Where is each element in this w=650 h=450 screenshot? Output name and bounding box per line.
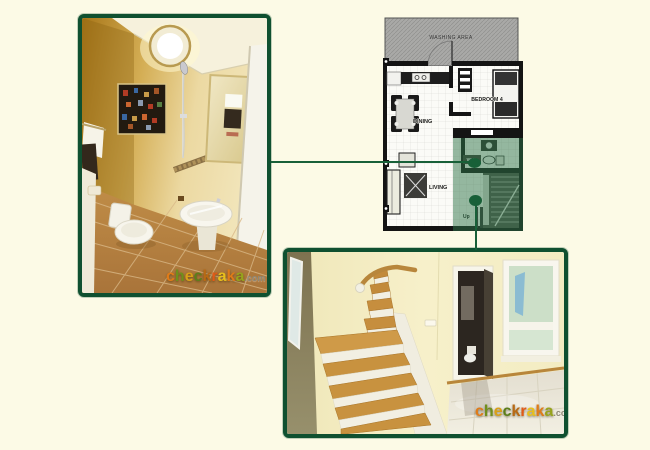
watermark-word: checkraka — [475, 403, 553, 420]
bed — [493, 70, 519, 118]
highlight-dot-wc — [468, 158, 481, 168]
open-door — [484, 269, 493, 379]
mosaic-art — [118, 84, 166, 134]
bathroom-photo — [82, 18, 267, 293]
staircase-photo-frame: checkraka.com — [283, 248, 568, 438]
connector-line-horizontal — [271, 161, 473, 163]
watermark-suffix: .com — [553, 408, 568, 418]
sliding-door — [471, 130, 493, 135]
washing-area-label: WASHING AREA — [429, 35, 472, 41]
living-label: LIVING — [429, 185, 447, 191]
bathroom-watermark: checkraka.com — [166, 269, 265, 285]
collage-canvas: checkraka.com WASHING AREA — [0, 0, 650, 450]
paper-holder — [88, 186, 101, 195]
washing-area: WASHING AREA — [385, 18, 518, 66]
staircase-watermark: checkraka.com — [475, 404, 568, 420]
window-sill — [501, 356, 561, 362]
kitchen — [387, 72, 449, 85]
interior-window — [501, 260, 561, 362]
side-window — [289, 258, 302, 348]
dining-label: DINING — [413, 119, 432, 125]
ceiling-light — [140, 24, 200, 72]
watermark-suffix: .com — [244, 273, 265, 283]
doorway — [453, 266, 493, 380]
toilet-tank — [467, 346, 476, 354]
bathroom-photo-frame: checkraka.com — [78, 14, 271, 297]
highlight-dot-stairs — [469, 195, 482, 206]
toilet-bowl — [464, 354, 476, 363]
wardrobe-slats — [460, 71, 470, 89]
floor-plan: WASHING AREA DINING — [383, 17, 523, 231]
connector-line-vertical — [475, 200, 477, 250]
bedroom-label: BEDROOM 4 — [471, 97, 503, 103]
highlight-overlay — [453, 138, 523, 231]
floor-drain — [178, 196, 184, 201]
watermark-word: checkraka — [166, 268, 244, 285]
power-outlet — [425, 320, 436, 326]
